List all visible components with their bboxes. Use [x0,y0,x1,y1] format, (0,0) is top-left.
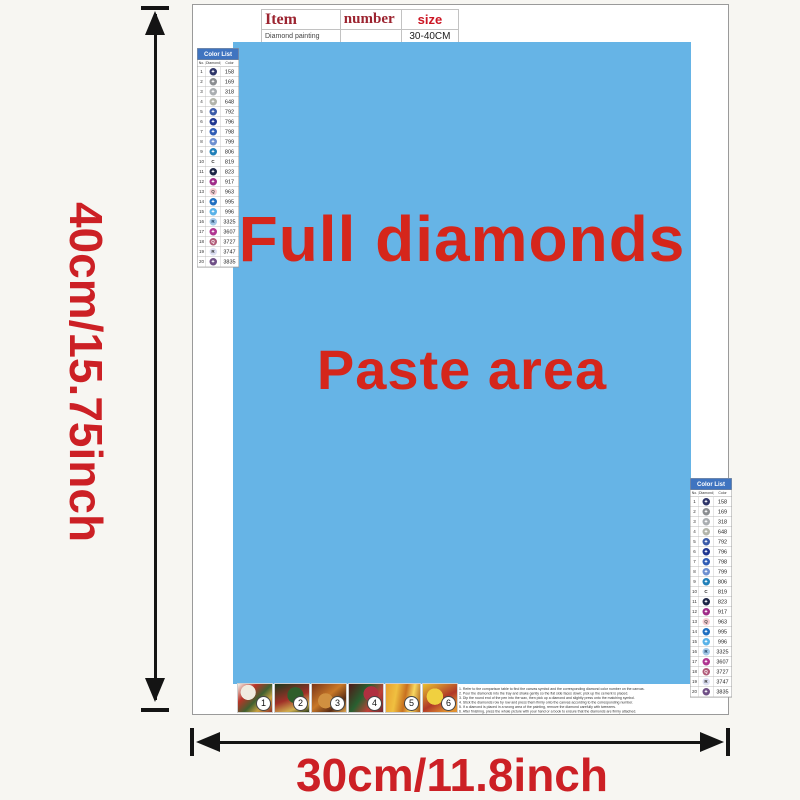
diamond-symbol: ✦ [209,148,217,156]
diamond-symbol-cell: ✦ [206,87,221,97]
instruction-line: 6. After finishing, press the whole pict… [459,710,699,715]
color-code: 3835 [714,689,732,695]
color-code: 823 [714,599,732,605]
color-code: 3727 [221,239,239,245]
color-code: 819 [221,159,239,165]
diamond-symbol-cell: ✦ [699,507,714,517]
color-list-row: 20✦3835 [198,257,239,267]
color-list-row: 7✦798 [691,557,732,567]
row-number: 3 [198,87,207,97]
row-number: 18 [198,237,207,247]
color-list-row: 15✦996 [691,637,732,647]
color-list-row: 17✦3607 [198,227,239,237]
row-number: 16 [691,647,700,657]
diamond-symbol: ✦ [702,568,710,576]
item-header-cell: Item [262,10,341,30]
diamond-symbol-cell: ✦ [699,657,714,667]
color-code: 169 [221,79,239,85]
arrow-shaft-vertical [154,14,157,700]
arrow-bottom-cap [141,708,169,712]
diamond-symbol: Q [209,238,217,246]
color-list-row: 1✦158 [691,497,732,507]
diamond-symbol: ✦ [209,228,217,236]
color-list-title: Color List [198,49,239,61]
color-code: 318 [714,519,732,525]
color-list-row: 18Q3727 [691,667,732,677]
row-number: 11 [198,167,207,177]
thumbnail-image: 6 [422,683,458,713]
color-list-row: 3✦318 [198,87,239,97]
row-number: 6 [198,117,207,127]
color-code: 3607 [221,229,239,235]
diamond-symbol-cell: ✦ [206,167,221,177]
diamond-symbol-cell: ✦ [206,117,221,127]
diamond-symbol: ✦ [209,108,217,116]
diamond-symbol: ✦ [209,88,217,96]
color-list-row: 8✦799 [198,137,239,147]
diamond-symbol-cell: ✦ [206,257,221,267]
color-code: 3325 [221,219,239,225]
color-code: 798 [221,129,239,135]
diamond-symbol-cell: ✦ [699,637,714,647]
color-list-row: 5✦792 [691,537,732,547]
row-number: 15 [691,637,700,647]
color-code: 823 [221,169,239,175]
diamond-symbol-cell: ✦ [206,147,221,157]
thumbnail-number-badge: 4 [367,696,382,711]
row-number: 4 [198,97,207,107]
diamond-symbol-cell: ✦ [699,607,714,617]
color-list-row: 5✦792 [198,107,239,117]
diamond-symbol-cell: C [699,587,714,597]
diamond-symbol-cell: R [699,647,714,657]
color-list-row: 4✦648 [691,527,732,537]
row-number: 11 [691,597,700,607]
color-list-row: 17✦3607 [691,657,732,667]
color-code: 798 [714,559,732,565]
color-code: 996 [714,639,732,645]
diamond-symbol-cell: ✦ [699,557,714,567]
paste-area-canvas: Full diamonds Paste area [233,42,691,684]
color-code: 819 [714,589,732,595]
diamond-symbol: ✦ [702,558,710,566]
diamond-symbol: ✦ [209,78,217,86]
color-list-row: 2✦169 [198,77,239,87]
thumbnail-number-badge: 5 [404,696,419,711]
thumbnail-image: 1 [237,683,273,713]
diamond-symbol: R [209,218,217,226]
column-header-no: No. [691,492,700,496]
column-header-diamond: Diamond [699,492,714,496]
size-header-cell: size [401,10,458,30]
row-number: 13 [691,617,700,627]
row-number: 10 [691,587,700,597]
color-list-row: 12✦917 [198,177,239,187]
color-list-row: 13Q963 [691,617,732,627]
column-header-no: No. [198,62,207,66]
color-code: 648 [714,529,732,535]
color-list-right: Color ListNo.DiamondColor1✦1582✦1693✦318… [690,478,731,687]
diamond-symbol-cell: ✦ [699,687,714,697]
diamond-symbol: C [702,588,710,596]
arrow-right-cap [726,728,730,756]
diamond-symbol: ✦ [209,168,217,176]
color-list-row: 3✦318 [691,517,732,527]
color-list-row: 6✦796 [198,117,239,127]
row-number: 7 [198,127,207,137]
poster-page: Item number size Diamond painting 30-40C… [192,4,729,715]
diamond-symbol: R [209,248,217,256]
diamond-symbol-cell: ✦ [699,597,714,607]
color-code: 799 [714,569,732,575]
diamond-symbol-cell: R [699,677,714,687]
thumbnail-number-badge: 6 [441,696,456,711]
diamond-symbol-cell: Q [206,187,221,197]
diamond-symbol: R [702,648,710,656]
diamond-symbol: ✦ [209,208,217,216]
color-list-row: 13Q963 [198,187,239,197]
color-list-row: 2✦169 [691,507,732,517]
row-number: 9 [691,577,700,587]
row-number: 5 [198,107,207,117]
column-header-color: Color [714,492,732,496]
color-list-row: 12✦917 [691,607,732,617]
row-number: 16 [198,217,207,227]
diamond-symbol: ✦ [702,598,710,606]
diamond-symbol-cell: ✦ [206,207,221,217]
row-number: 13 [198,187,207,197]
diamond-symbol: ✦ [702,638,710,646]
row-number: 15 [198,207,207,217]
height-dimension-label: 40cm/15.75inch [59,202,113,542]
diamond-symbol: Q [702,618,710,626]
diamond-symbol-cell: R [206,217,221,227]
color-code: 917 [714,609,732,615]
diamond-symbol-cell: Q [206,237,221,247]
row-number: 17 [198,227,207,237]
color-list-row: 11✦823 [198,167,239,177]
row-number: 5 [691,537,700,547]
row-number: 1 [691,497,700,507]
color-list-row: 1✦158 [198,67,239,77]
paste-area-subtitle: Paste area [233,337,691,402]
thumbnail-number-badge: 1 [256,696,271,711]
color-code: 995 [221,199,239,205]
color-list-row: 10C819 [691,587,732,597]
arrow-down-icon [145,678,165,702]
color-list-row: 14✦995 [691,627,732,637]
color-code: 996 [221,209,239,215]
row-number: 7 [691,557,700,567]
color-list-row: 16R3325 [691,647,732,657]
diamond-symbol: C [209,158,217,166]
diamond-symbol-cell: ✦ [699,537,714,547]
diamond-symbol: ✦ [209,68,217,76]
diamond-symbol-cell: C [206,157,221,167]
color-code: 796 [714,549,732,555]
diamond-symbol: ✦ [702,528,710,536]
row-number: 20 [198,257,207,267]
diamond-symbol: R [702,678,710,686]
row-number: 18 [691,667,700,677]
diamond-symbol-cell: ✦ [206,137,221,147]
color-code: 792 [221,109,239,115]
diamond-symbol-cell: ✦ [206,77,221,87]
color-code: 3835 [221,259,239,265]
diamond-symbol: ✦ [209,118,217,126]
color-list-row: 19R3747 [691,677,732,687]
thumbnail-image: 3 [311,683,347,713]
thumbnail-image: 4 [348,683,384,713]
thumbnail-image: 2 [274,683,310,713]
diamond-symbol-cell: Q [699,617,714,627]
diamond-symbol: ✦ [702,538,710,546]
row-number: 6 [691,547,700,557]
row-number: 4 [691,527,700,537]
row-number: 14 [691,627,700,637]
diamond-symbol: ✦ [702,578,710,586]
color-list-title: Color List [691,479,732,491]
color-code: 963 [221,189,239,195]
diamond-symbol: ✦ [209,98,217,106]
diamond-symbol: ✦ [702,548,710,556]
thumbnail-number-badge: 3 [330,696,345,711]
color-code: 158 [221,69,239,75]
diamond-symbol: Q [702,668,710,676]
diamond-symbol: ✦ [209,128,217,136]
diamond-symbol: ✦ [702,658,710,666]
color-list-row: 16R3325 [198,217,239,227]
color-list-row: 6✦796 [691,547,732,557]
color-code: 799 [221,139,239,145]
diamond-symbol: ✦ [702,508,710,516]
color-code: 796 [221,119,239,125]
diamond-symbol: ✦ [702,608,710,616]
column-header-diamond: Diamond [206,62,221,66]
diamond-symbol: ✦ [702,628,710,636]
row-number: 8 [691,567,700,577]
color-code: 3747 [714,679,732,685]
thumbnail-number-badge: 2 [293,696,308,711]
color-list-row: 18Q3727 [198,237,239,247]
color-code: 648 [221,99,239,105]
color-list-row: 10C819 [198,157,239,167]
row-number: 12 [198,177,207,187]
diamond-symbol-cell: Q [699,667,714,677]
color-list-left: Color ListNo.DiamondColor1✦1582✦1693✦318… [197,48,238,257]
column-header-color: Color [221,62,239,66]
color-list-column-headers: No.DiamondColor [198,60,239,67]
instructions-text: 1. Refer to the comparison table to find… [459,687,699,714]
color-list-row: 19R3747 [198,247,239,257]
row-number: 2 [691,507,700,517]
number-header-cell: number [340,10,401,30]
color-list-row: 14✦995 [198,197,239,207]
item-table: Item number size Diamond painting 30-40C… [261,9,459,44]
diamond-symbol-cell: ✦ [699,567,714,577]
row-number: 2 [198,77,207,87]
diamond-symbol-cell: R [206,247,221,257]
diamond-symbol: ✦ [702,518,710,526]
color-list-table: Color ListNo.DiamondColor1✦1582✦1693✦318… [197,48,239,268]
color-list-row: 4✦648 [198,97,239,107]
color-code: 792 [714,539,732,545]
color-list-row: 9✦806 [198,147,239,157]
diamond-symbol: ✦ [209,178,217,186]
diamond-symbol-cell: ✦ [699,527,714,537]
color-list-row: 11✦823 [691,597,732,607]
product-image: Item number size Diamond painting 30-40C… [0,0,800,800]
diamond-symbol-cell: ✦ [206,197,221,207]
color-code: 806 [221,149,239,155]
thumbnail-strip: 123456 [237,683,458,713]
color-list-column-headers: No.DiamondColor [691,490,732,497]
color-list-table: Color ListNo.DiamondColor1✦1582✦1693✦318… [690,478,732,698]
row-number: 19 [691,677,700,687]
color-code: 3325 [714,649,732,655]
color-code: 318 [221,89,239,95]
row-number: 14 [198,197,207,207]
diamond-symbol: ✦ [209,198,217,206]
diamond-symbol-cell: ✦ [206,107,221,117]
row-number: 17 [691,657,700,667]
diamond-symbol-cell: ✦ [206,97,221,107]
arrow-shaft-horizontal [212,741,706,744]
paste-area-title: Full diamonds [233,202,691,276]
color-code: 158 [714,499,732,505]
arrow-left-cap [190,728,194,756]
diamond-symbol-cell: ✦ [699,497,714,507]
row-number: 1 [198,67,207,77]
diamond-symbol-cell: ✦ [699,577,714,587]
color-code: 3727 [714,669,732,675]
color-list-row: 7✦798 [198,127,239,137]
diamond-symbol-cell: ✦ [699,547,714,557]
color-list-row: 8✦799 [691,567,732,577]
color-list-row: 15✦996 [198,207,239,217]
thumbnail-image: 5 [385,683,421,713]
color-code: 917 [221,179,239,185]
width-dimension-label: 30cm/11.8inch [296,748,608,800]
row-number: 12 [691,607,700,617]
color-code: 995 [714,629,732,635]
color-code: 806 [714,579,732,585]
row-number: 19 [198,247,207,257]
diamond-symbol: ✦ [702,688,710,696]
diamond-symbol: ✦ [209,138,217,146]
row-number: 9 [198,147,207,157]
row-number: 10 [198,157,207,167]
arrow-right-icon [700,732,724,752]
diamond-symbol: ✦ [209,258,217,266]
row-number: 3 [691,517,700,527]
color-list-row: 9✦806 [691,577,732,587]
diamond-symbol-cell: ✦ [206,127,221,137]
diamond-symbol-cell: ✦ [206,67,221,77]
color-code: 963 [714,619,732,625]
diamond-symbol-cell: ✦ [206,227,221,237]
arrow-top-cap [141,6,169,10]
color-code: 3607 [714,659,732,665]
color-code: 3747 [221,249,239,255]
row-number: 8 [198,137,207,147]
diamond-symbol: ✦ [702,498,710,506]
diamond-symbol-cell: ✦ [699,627,714,637]
color-code: 169 [714,509,732,515]
diamond-symbol-cell: ✦ [699,517,714,527]
diamond-symbol-cell: ✦ [206,177,221,187]
diamond-symbol: Q [209,188,217,196]
